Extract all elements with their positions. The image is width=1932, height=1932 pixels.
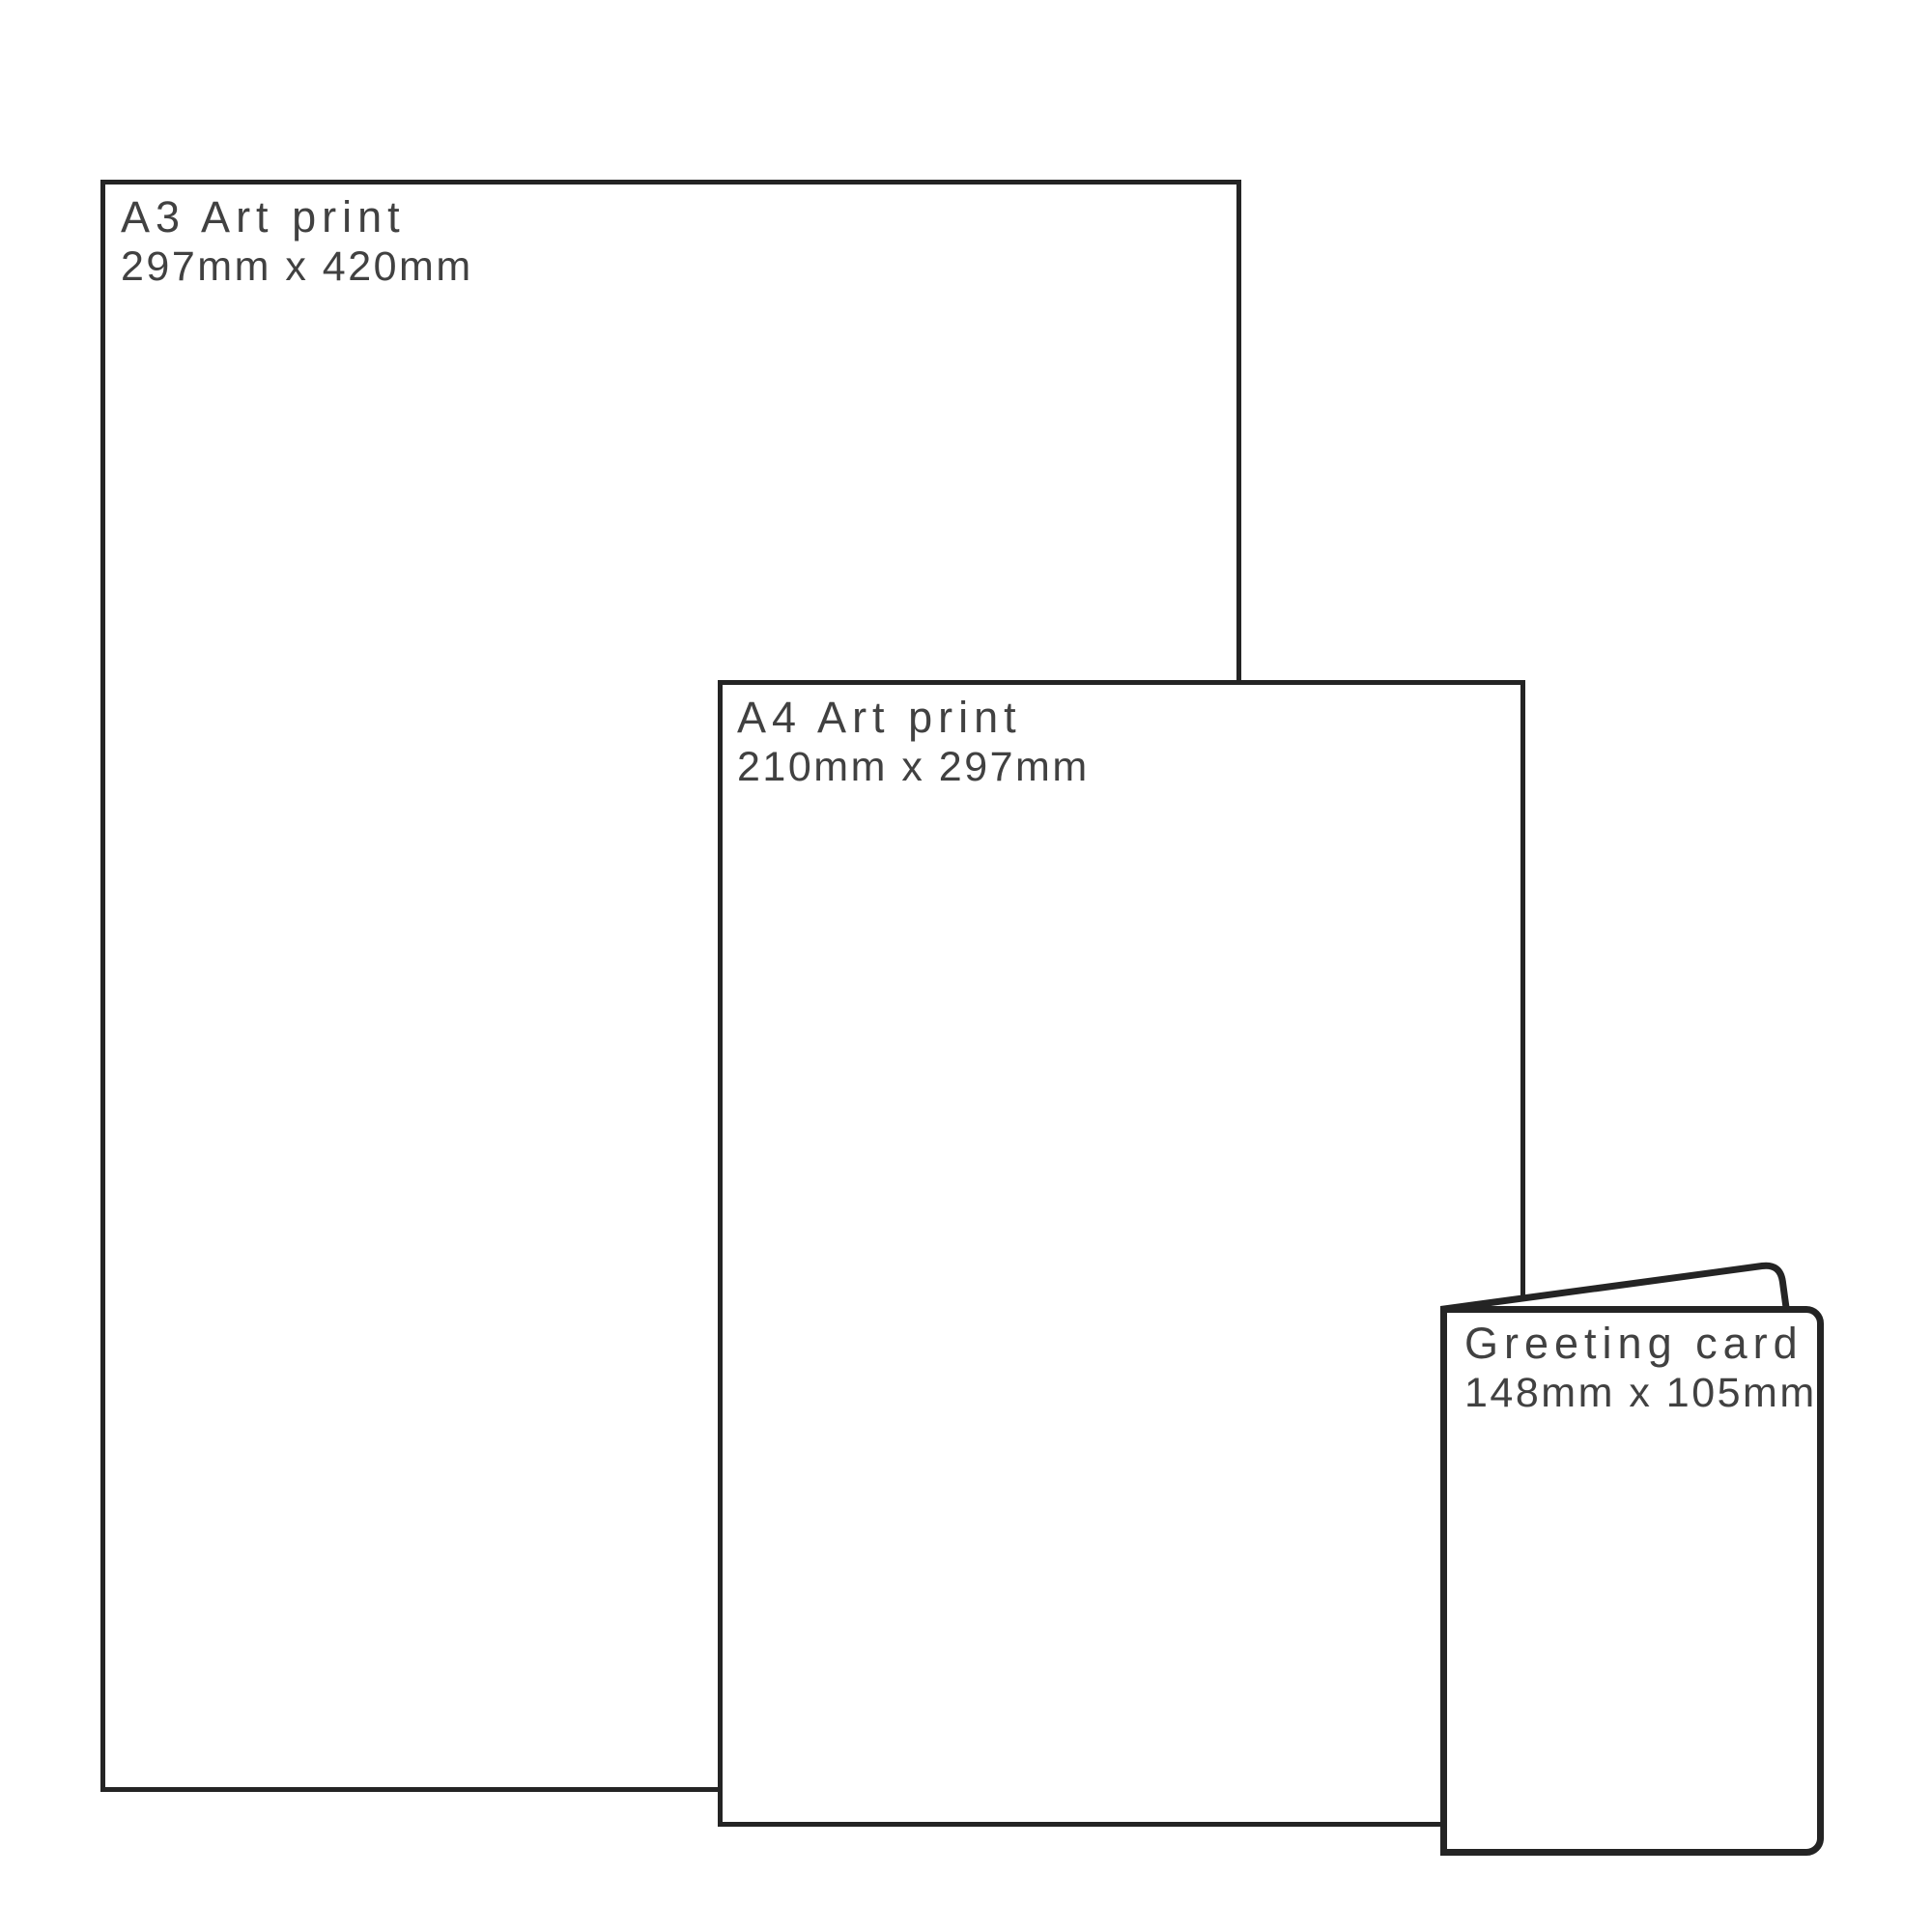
greeting-card-dimensions: 148mm x 105mm [1464,1369,1817,1417]
greeting-card-name: Greeting card [1464,1319,1817,1369]
a4-print-label: A4 Art print 210mm x 297mm [737,693,1090,791]
a4-print-name: A4 Art print [737,693,1090,743]
a3-print-name: A3 Art print [121,192,473,242]
a4-print-outline [718,680,1525,1827]
a3-print-label: A3 Art print 297mm x 420mm [121,192,473,291]
a4-print-dimensions: 210mm x 297mm [737,743,1090,791]
a3-print-dimensions: 297mm x 420mm [121,242,473,291]
size-comparison-diagram: A3 Art print 297mm x 420mm A4 Art print … [0,0,1932,1932]
greeting-card-label: Greeting card 148mm x 105mm [1464,1319,1817,1417]
